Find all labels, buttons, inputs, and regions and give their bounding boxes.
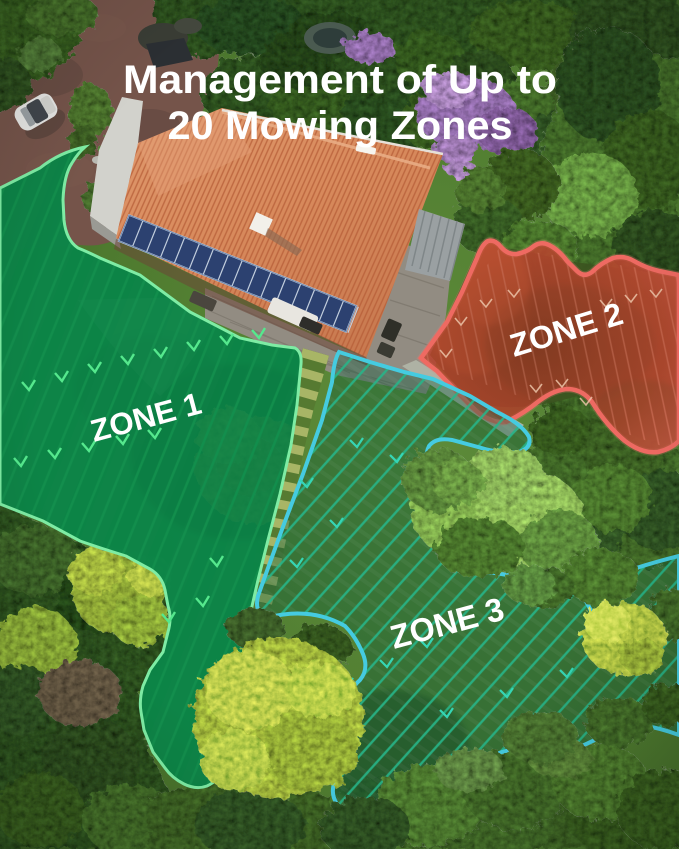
svg-text:20 Mowing Zones: 20 Mowing Zones	[168, 104, 513, 148]
svg-text:Management of Up to: Management of Up to	[123, 58, 557, 102]
